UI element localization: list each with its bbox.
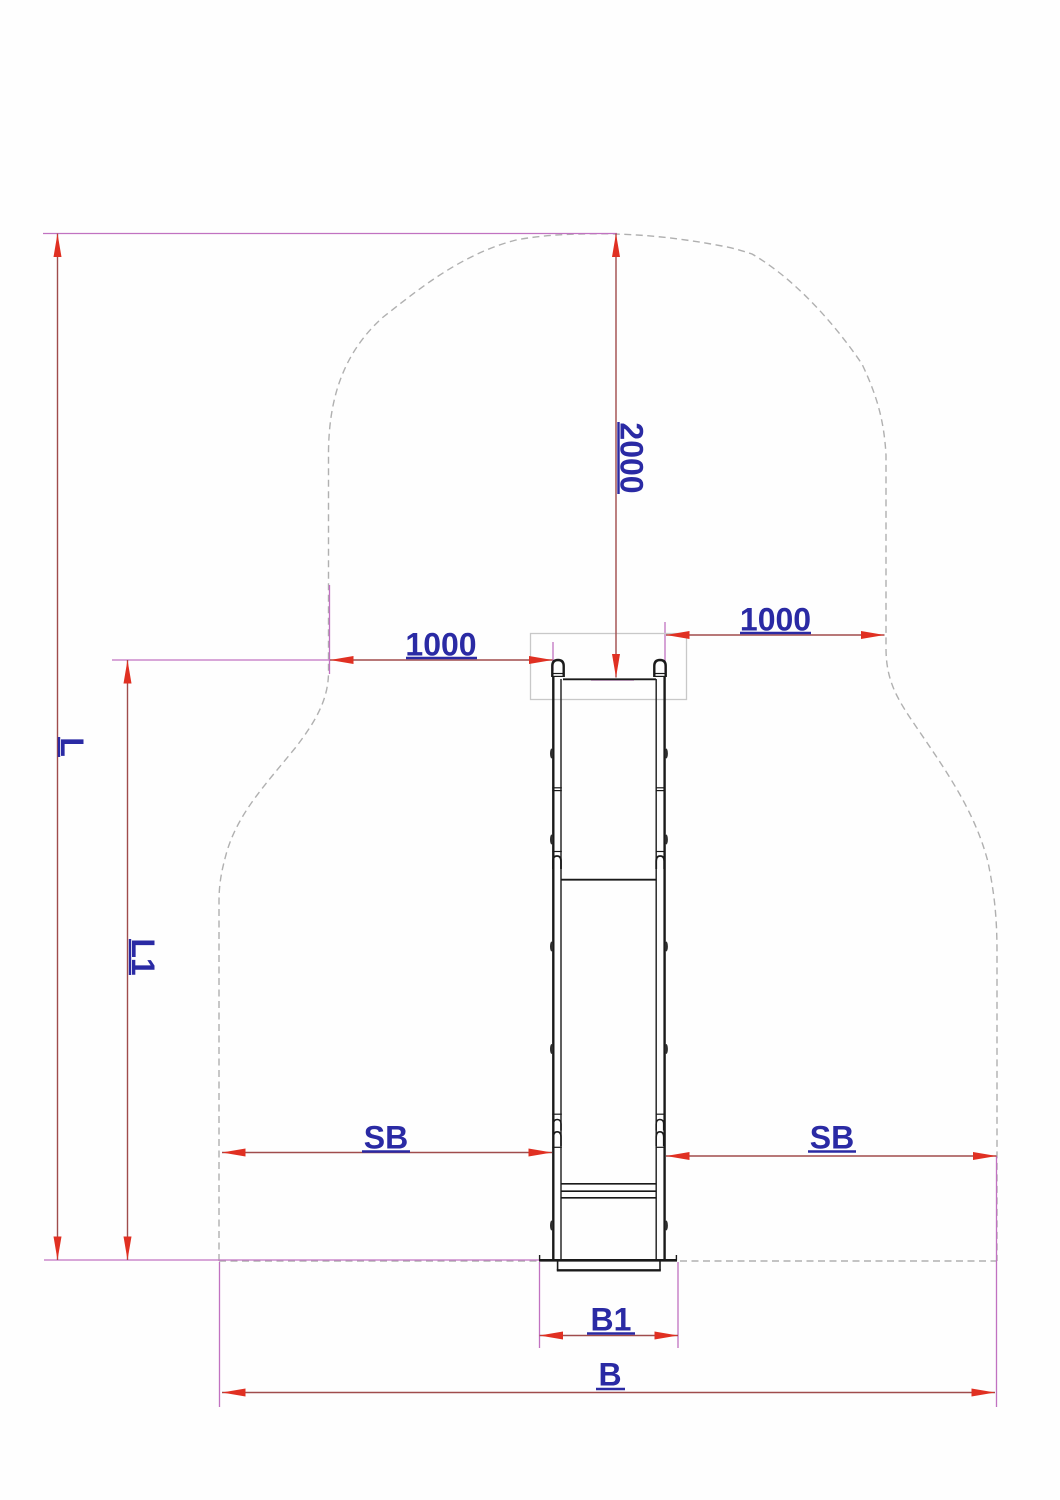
svg-text:SB: SB	[810, 1120, 854, 1156]
svg-text:SB: SB	[364, 1120, 408, 1156]
svg-text:B: B	[598, 1357, 621, 1393]
svg-text:B1: B1	[591, 1302, 632, 1338]
